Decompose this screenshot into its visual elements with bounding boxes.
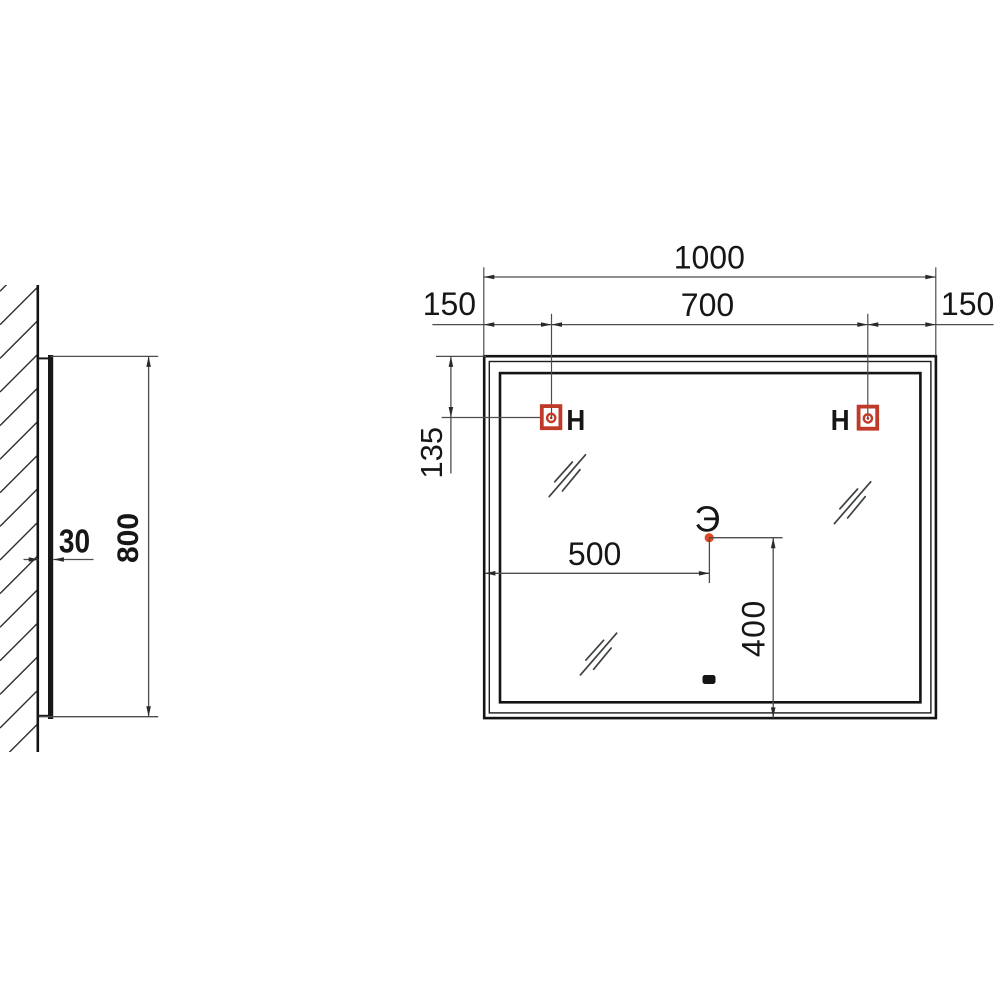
svg-text:Э: Э (694, 498, 720, 539)
svg-text:30: 30 (59, 523, 90, 560)
svg-text:Н: Н (566, 404, 585, 437)
svg-text:500: 500 (568, 536, 621, 572)
svg-text:700: 700 (681, 287, 734, 323)
svg-text:400: 400 (736, 599, 772, 657)
svg-text:Н: Н (831, 404, 850, 437)
svg-text:800: 800 (112, 513, 145, 563)
svg-text:150: 150 (423, 286, 476, 322)
svg-text:150: 150 (941, 286, 994, 322)
svg-text:135: 135 (414, 427, 449, 479)
svg-text:1000: 1000 (674, 240, 745, 276)
